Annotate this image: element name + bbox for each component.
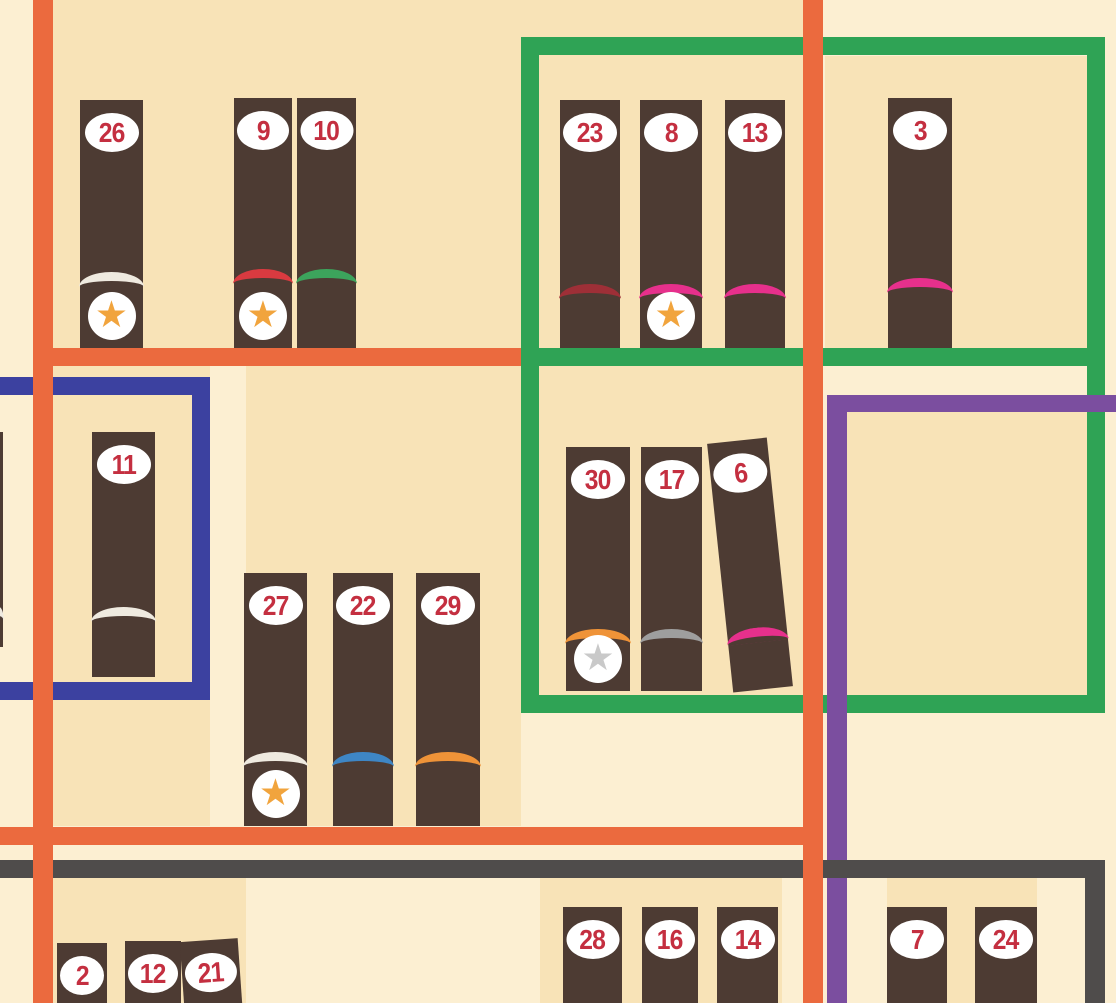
- green-frame-left-bar: [521, 37, 539, 713]
- blue-frame-bottom-bar: [0, 682, 210, 700]
- purple-frame-left-bar: [827, 395, 847, 1003]
- gray-frame-shelf-bar: [0, 860, 1105, 878]
- orange-frame-shelf-bar-top: [33, 348, 521, 366]
- purple-frame-top-bar: [827, 395, 1116, 412]
- blue-frame-right-bar: [192, 377, 210, 700]
- orange-frame-shelf-bar-bottom: [0, 827, 823, 845]
- shelf-frames-layer: [0, 0, 1116, 1003]
- gray-frame-right-bar: [1085, 860, 1105, 1003]
- orange-frame-left-bar: [33, 0, 53, 1003]
- orange-frame-right-bar: [803, 0, 823, 1003]
- green-frame-right-bar: [1087, 37, 1105, 713]
- bookshelf-scene: 26★9★10238★1331130★17627★222921221281614…: [0, 0, 1116, 1003]
- blue-frame-top-bar: [0, 377, 210, 395]
